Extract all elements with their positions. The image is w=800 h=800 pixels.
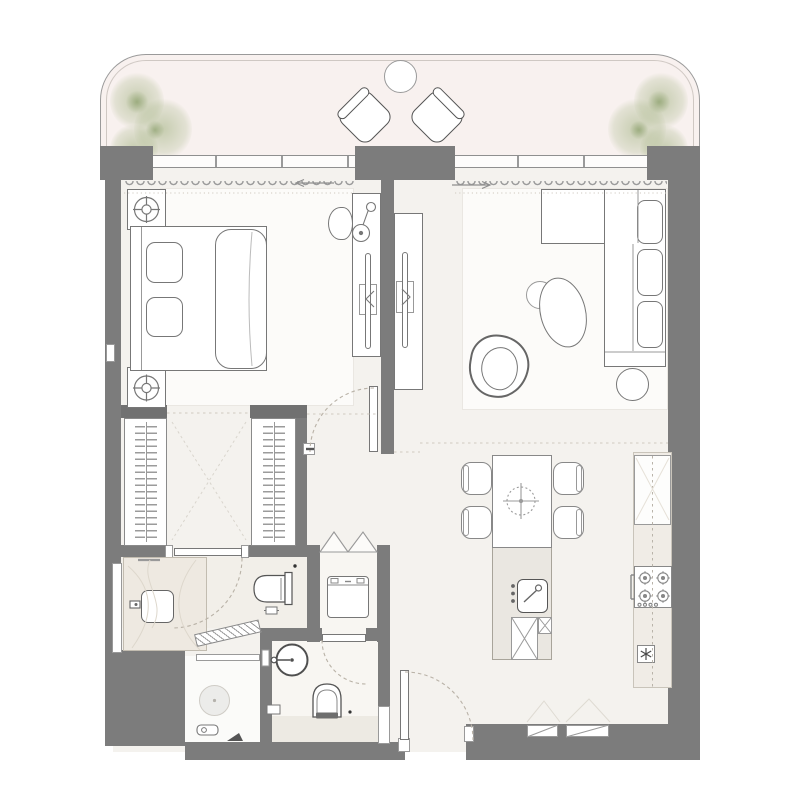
hangers xyxy=(147,426,157,538)
wall-notch-left xyxy=(106,344,115,362)
bedroom-door xyxy=(369,386,378,452)
wall-right xyxy=(668,178,700,760)
wall-niche-1 xyxy=(527,725,558,737)
bathroom1-door xyxy=(174,548,242,556)
balcony-round-table xyxy=(384,60,417,93)
wall-niche-2 xyxy=(566,725,609,737)
wall-bottom-a xyxy=(185,742,405,760)
floor-plan xyxy=(0,0,800,800)
nightstand-top xyxy=(127,189,166,230)
dining-chair-1 xyxy=(461,462,492,495)
pillar-top-center xyxy=(355,146,455,180)
sofa-cushion-2 xyxy=(637,249,663,296)
dining-chair-4 xyxy=(553,506,584,539)
hangers xyxy=(263,426,273,538)
door-jamb-bath1-r xyxy=(241,545,249,558)
door-jamb-entry-bottom xyxy=(398,738,410,752)
nightstand-bottom xyxy=(127,367,166,408)
tv-panel-bedroom xyxy=(365,253,371,349)
sofa-cushion-3 xyxy=(637,301,663,348)
pillar-top-left xyxy=(100,146,153,180)
wall-bedroom-living-divider xyxy=(381,180,394,454)
wall-closet-east xyxy=(295,412,307,547)
tall-unit xyxy=(634,455,671,525)
pillow-1 xyxy=(146,242,183,283)
duvet xyxy=(215,229,267,369)
bathroom2-door xyxy=(322,634,366,642)
headboard-line xyxy=(141,227,142,370)
bathroom2-ledge xyxy=(272,716,378,742)
dining-chair-3 xyxy=(553,462,584,495)
wall-bath2-left xyxy=(260,628,272,744)
window-slit-left-wall xyxy=(112,563,122,653)
dining-chair-2 xyxy=(461,506,492,539)
hangers xyxy=(135,426,145,538)
wardrobe-right xyxy=(251,418,296,546)
washing-machine xyxy=(327,576,369,618)
pillar-top-right xyxy=(647,146,700,180)
desk-chair xyxy=(328,207,353,240)
door-jamb-entry-right xyxy=(464,726,474,742)
door-stop-closet xyxy=(303,443,315,455)
island-sink xyxy=(517,579,548,613)
wall-bath2-top-left xyxy=(264,628,322,641)
sliding-window-left xyxy=(153,155,355,168)
wall-stub-closet-right xyxy=(250,405,307,418)
door-jamb-entry-left xyxy=(378,706,390,744)
sliding-window-right xyxy=(455,155,647,168)
wall-bath1-top-right xyxy=(242,545,307,557)
gas-cooktop xyxy=(634,566,672,608)
dining-table xyxy=(492,455,552,548)
snowflake-appliance-box xyxy=(637,645,655,663)
hangers xyxy=(275,426,285,538)
wall-bath2-right xyxy=(378,628,390,706)
dishwasher xyxy=(511,617,538,660)
round-side-table xyxy=(616,368,649,401)
wardrobe-left xyxy=(124,418,167,546)
tv-panel-living xyxy=(402,252,408,348)
entry-door xyxy=(400,670,409,740)
wall-bottom-left-block xyxy=(105,650,185,746)
vanity-sink xyxy=(141,590,174,623)
floor-drain xyxy=(199,685,230,716)
pillow-2 xyxy=(146,297,183,337)
small-x-box xyxy=(538,617,552,634)
shower-glass-track xyxy=(196,654,260,661)
sofa-cushion-1 xyxy=(637,200,663,244)
